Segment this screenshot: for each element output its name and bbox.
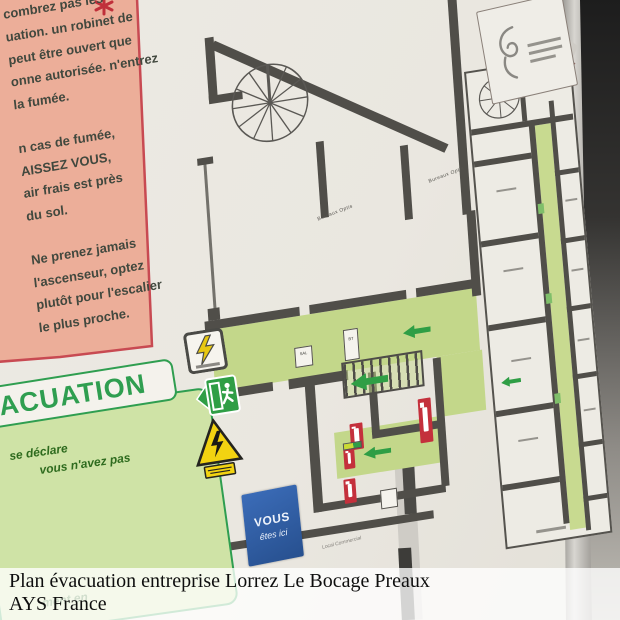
fire-extinguisher-icon bbox=[343, 478, 357, 504]
wall-mid-b bbox=[400, 145, 413, 220]
legend-text-line bbox=[530, 54, 556, 63]
you-are-here-box: VOUS êtes ici bbox=[241, 484, 304, 566]
sal-sign: SAL bbox=[294, 345, 313, 368]
legend-text-line bbox=[529, 45, 563, 56]
inset-room-label bbox=[496, 187, 516, 192]
inset-room-label bbox=[571, 268, 583, 272]
inset-wall bbox=[474, 152, 532, 167]
wall-vertical-lower bbox=[304, 379, 323, 513]
instructions-text: combrez pas les uation. un robinet de pe… bbox=[2, 0, 238, 340]
inset-wall bbox=[496, 402, 554, 417]
inset-door-mark bbox=[546, 293, 553, 304]
inset-caption-label bbox=[536, 526, 566, 533]
inset-room-label bbox=[511, 357, 531, 362]
evacuation-plan-photo: Bureaux Optis Bureaux Optis Local Commer… bbox=[0, 0, 620, 620]
caption-bar: Plan évacuation entreprise Lorrez Le Boc… bbox=[0, 568, 620, 620]
caption-subtitle: AYS France bbox=[9, 593, 620, 616]
wall-mid-a bbox=[316, 141, 329, 218]
inset-wall bbox=[488, 316, 546, 331]
inset-room-label bbox=[518, 437, 538, 442]
electrical-panel-sign bbox=[183, 327, 230, 380]
inset-door-mark bbox=[538, 203, 545, 214]
inset-room-label bbox=[584, 408, 596, 412]
legend-logo-icon bbox=[486, 19, 532, 86]
caption-title: Plan évacuation entreprise Lorrez Le Boc… bbox=[9, 570, 620, 593]
inset-room-label bbox=[578, 338, 590, 342]
inset-room-label bbox=[565, 198, 577, 202]
inset-wall bbox=[481, 232, 539, 247]
inset-wall bbox=[502, 476, 560, 491]
fire-hose-sign bbox=[418, 397, 434, 443]
inset-door-mark bbox=[554, 393, 561, 404]
bt-sign: BT bbox=[343, 328, 360, 361]
inset-room-label bbox=[503, 267, 523, 272]
fire-extinguisher-icon bbox=[343, 448, 355, 470]
electrical-hazard-triangle-sign bbox=[189, 415, 247, 489]
door-sign bbox=[380, 488, 398, 510]
inset-evacuation-arrow bbox=[501, 375, 522, 388]
you-are-here-line2: êtes ici bbox=[259, 526, 288, 541]
